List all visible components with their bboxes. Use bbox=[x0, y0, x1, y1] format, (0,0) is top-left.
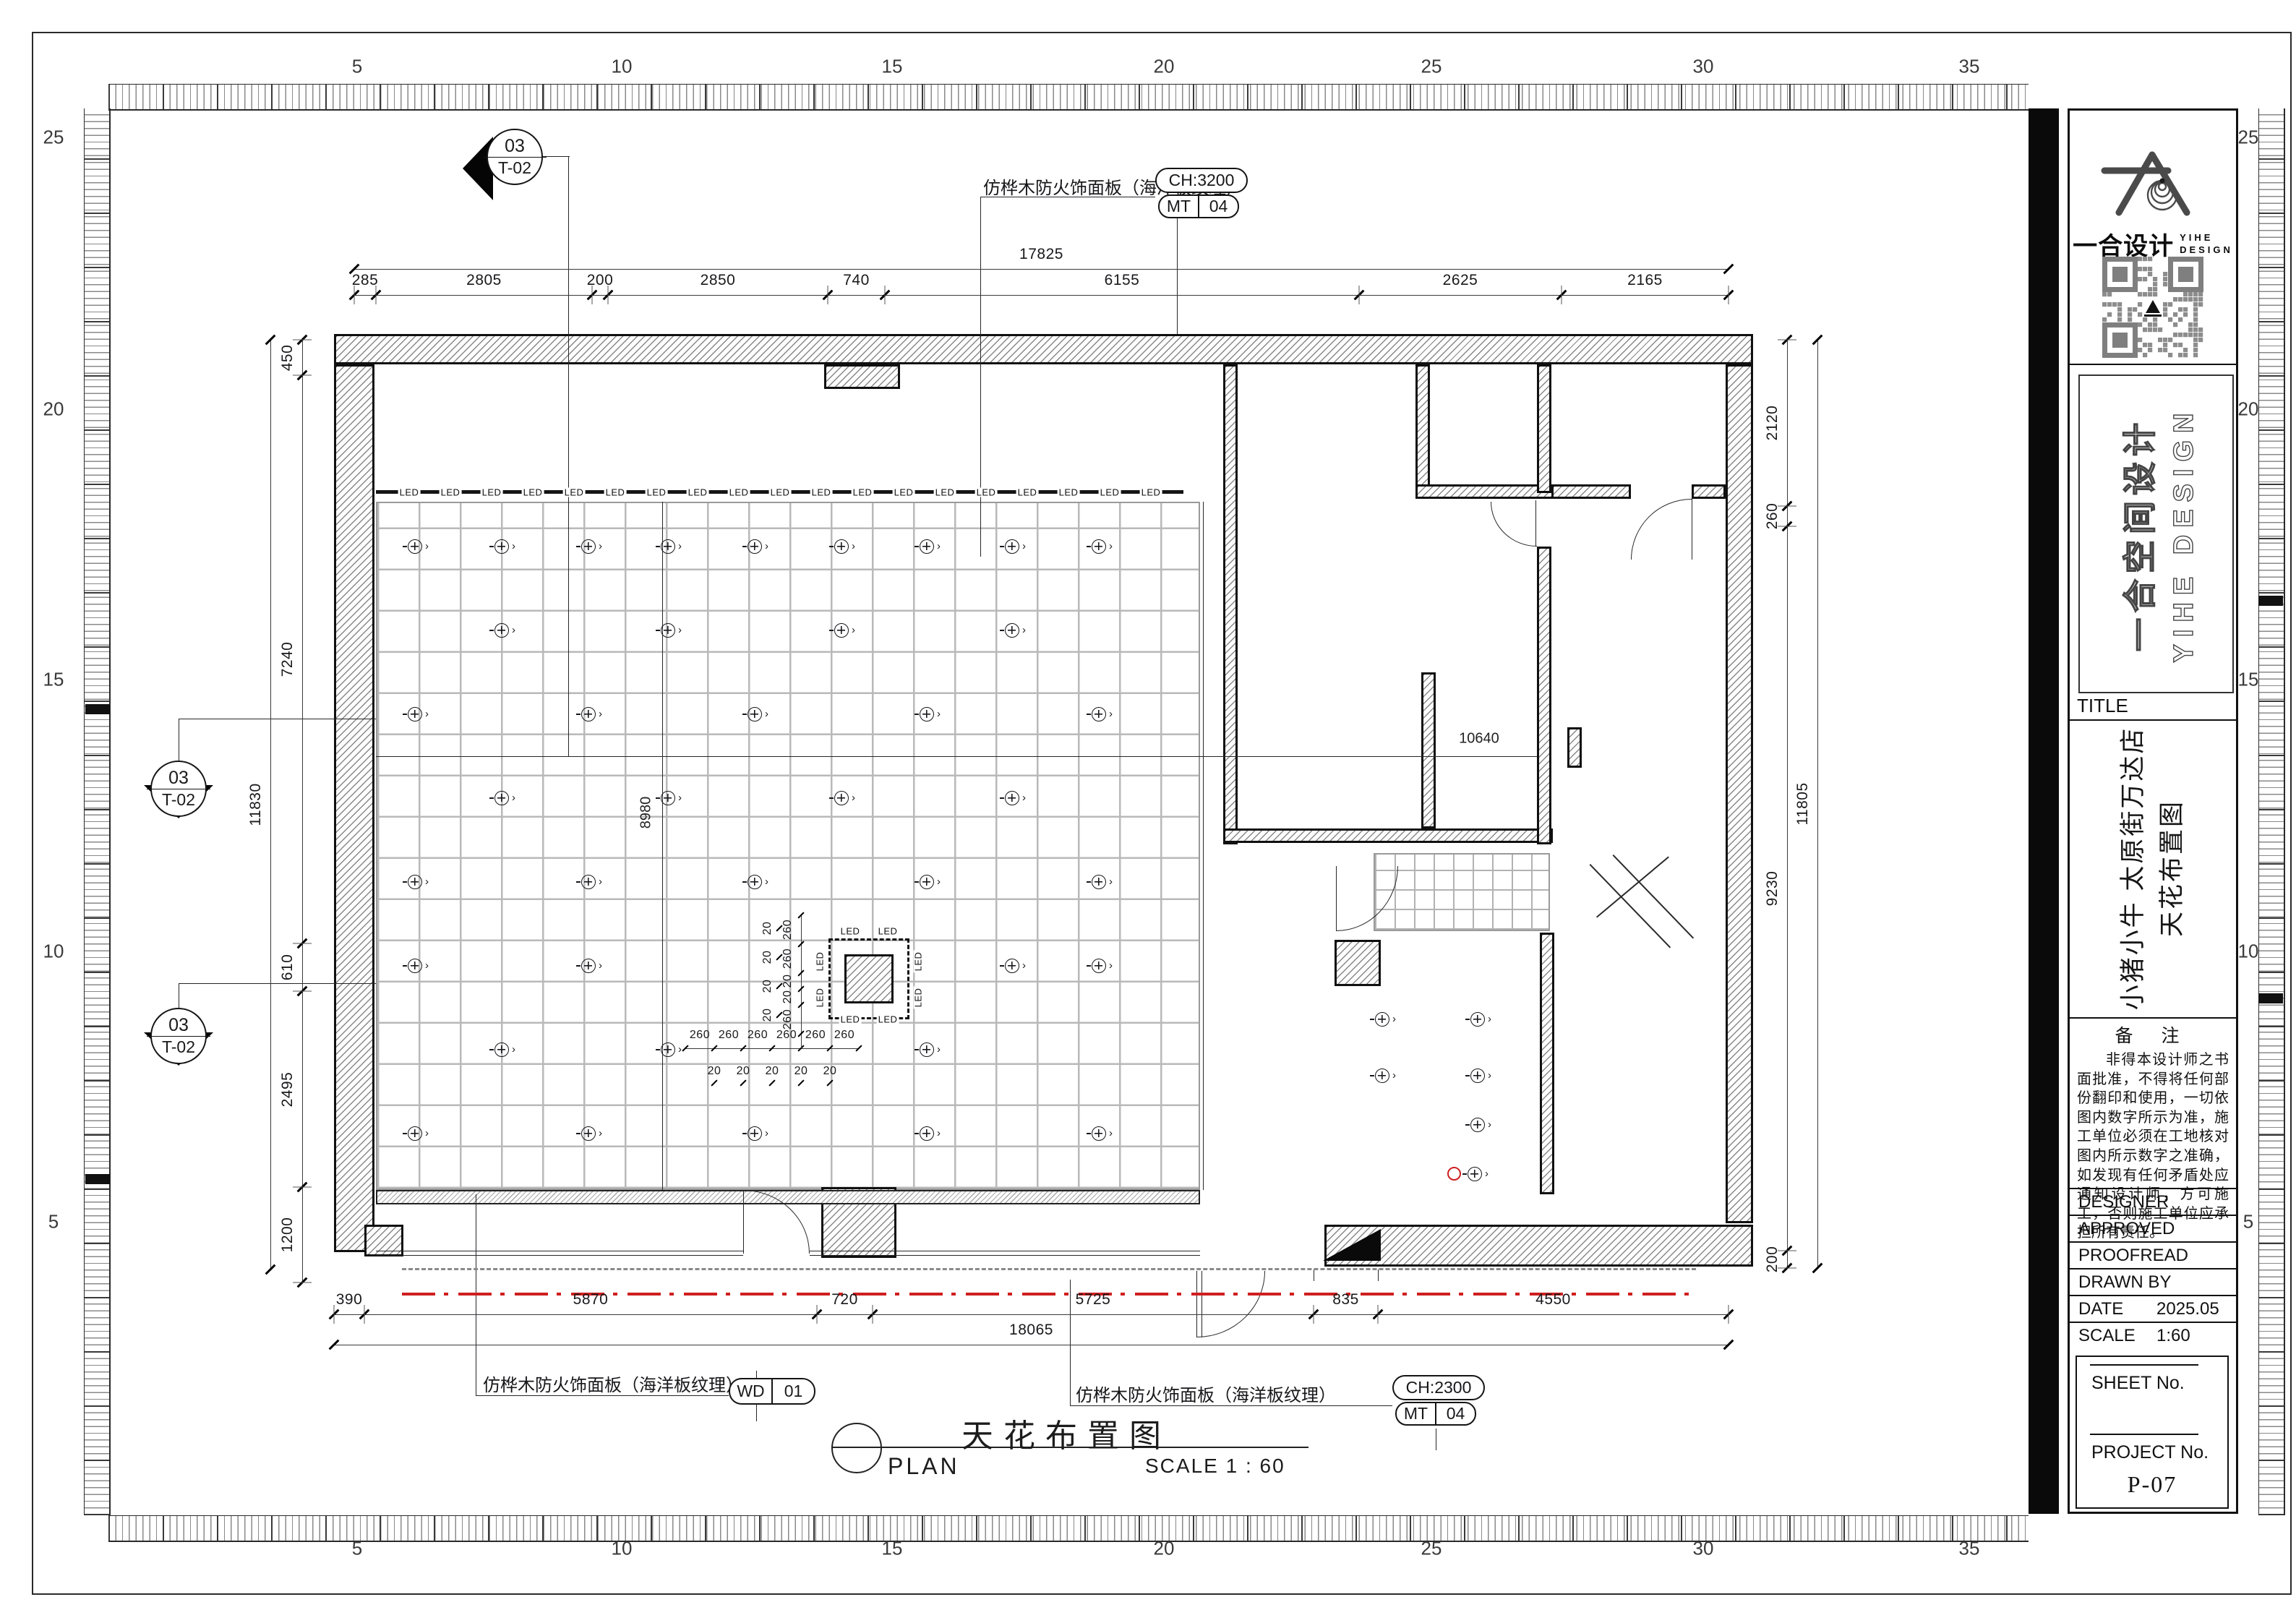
downlight-icon bbox=[661, 791, 675, 805]
led-label: LED bbox=[522, 488, 544, 497]
dimension-value: 20 bbox=[761, 951, 774, 964]
titleblock-rule bbox=[2070, 364, 2236, 365]
dimension-value: 20 bbox=[737, 1065, 750, 1078]
ruler-number: 30 bbox=[1693, 1538, 1714, 1560]
titleblock-row-label: DESIGNER bbox=[2078, 1192, 2169, 1212]
downlight-icon bbox=[494, 1042, 509, 1057]
project-no-label: PROJECT No. bbox=[2091, 1442, 2209, 1463]
titleblock-row-label: APPROVED bbox=[2078, 1219, 2175, 1239]
downlight-icon bbox=[748, 707, 762, 721]
dimension-value: 260 bbox=[690, 1029, 710, 1042]
led-label: LED bbox=[852, 488, 874, 497]
titleblock-row-label: SCALE bbox=[2078, 1326, 2136, 1346]
downlight-icon bbox=[834, 623, 849, 638]
brand-en-line2: DESIGN bbox=[2180, 244, 2233, 256]
inner-dim-v: 8980 bbox=[638, 797, 655, 829]
led-label: LED bbox=[877, 927, 899, 936]
dim-extension bbox=[293, 1282, 312, 1283]
dimension-line bbox=[354, 295, 1729, 296]
led-label: LED bbox=[769, 488, 792, 497]
title-label: TITLE bbox=[2077, 695, 2128, 717]
downlight-icon bbox=[1092, 539, 1106, 554]
material-tag: MT 04 bbox=[1158, 194, 1239, 218]
dimension-value: 20 bbox=[781, 975, 794, 988]
red-circle-mark bbox=[1447, 1167, 1461, 1181]
led-label: LED bbox=[815, 951, 825, 973]
led-label: LED bbox=[914, 951, 923, 973]
section-sheet-ref: T-02 bbox=[162, 789, 195, 810]
led-label: LED bbox=[1058, 488, 1080, 497]
dimension-value: 285 bbox=[352, 272, 379, 289]
led-label: LED bbox=[646, 488, 668, 497]
dim-extension bbox=[817, 1305, 818, 1324]
dimension-value: 260 bbox=[781, 920, 794, 940]
sheet-no-label: SHEET No. bbox=[2091, 1373, 2185, 1394]
dimension-value: 450 bbox=[279, 344, 296, 371]
dimension-value: 20 bbox=[708, 1065, 721, 1078]
wall-segment bbox=[1421, 672, 1436, 828]
wall-segment bbox=[334, 334, 1753, 364]
wall-segment bbox=[1335, 940, 1381, 986]
led-label: LED bbox=[1140, 488, 1162, 497]
storefront-dashed-line bbox=[402, 1268, 1696, 1270]
section-sheet-ref: T-02 bbox=[162, 1037, 195, 1058]
section-marker-bubble: 03 T-02 bbox=[150, 1008, 207, 1064]
led-label: LED bbox=[563, 488, 586, 497]
plan-title: 天花布置图 bbox=[961, 1410, 1171, 1456]
dimension-line bbox=[1817, 340, 1818, 1268]
led-label: LED bbox=[398, 488, 421, 497]
section-number: 03 bbox=[483, 135, 547, 158]
plan-line bbox=[1692, 499, 1692, 560]
section-marker-bubble: 03 T-02 bbox=[150, 761, 207, 817]
ruler-number: 25 bbox=[2238, 127, 2259, 149]
downlight-icon bbox=[408, 539, 422, 554]
drawing-name: 天花布置图 bbox=[2153, 800, 2192, 937]
dimension-value: 2805 bbox=[466, 272, 502, 289]
section-marker-top: 03 T-02 bbox=[479, 129, 551, 208]
dimension-value: 20 bbox=[761, 980, 774, 993]
fold-mark bbox=[2258, 993, 2283, 1003]
downlight-icon bbox=[581, 1126, 596, 1141]
material-code: MT bbox=[1397, 1403, 1436, 1424]
dimension-value: 5870 bbox=[573, 1291, 609, 1309]
material-number: 04 bbox=[1199, 196, 1238, 217]
ruler-band-bottom bbox=[108, 1515, 2029, 1542]
section-marker-bubble: 03 T-02 bbox=[487, 129, 543, 185]
annotation-bottom-left-text: 仿桦木防火饰面板（海洋板纹理） bbox=[483, 1371, 743, 1396]
section-number: 03 bbox=[147, 1014, 211, 1037]
titleblock-divider-bar bbox=[2029, 108, 2059, 1514]
fold-mark bbox=[2258, 596, 2283, 606]
led-label: LED bbox=[1099, 488, 1121, 497]
dim-extension bbox=[1562, 286, 1562, 304]
titleblock-row-label: PROOFREAD bbox=[2078, 1246, 2188, 1266]
plan-line bbox=[1436, 1429, 1436, 1450]
downlight-icon bbox=[494, 623, 509, 638]
ruler-number: 15 bbox=[882, 56, 903, 78]
dimension-value: 2120 bbox=[1764, 406, 1781, 441]
downlight-icon bbox=[581, 959, 596, 973]
plan-line bbox=[810, 1255, 1200, 1256]
dimension-line bbox=[354, 269, 1729, 270]
titleblock-row-label: DATE bbox=[2078, 1299, 2123, 1319]
annotation-bottom-right-tag: CH:2300 MT 04 bbox=[1392, 1375, 1485, 1426]
plan-title-en: PLAN bbox=[888, 1453, 960, 1480]
dim-extension bbox=[1778, 340, 1796, 341]
ruler-number: 25 bbox=[43, 127, 64, 149]
ruler-number: 30 bbox=[1693, 56, 1714, 78]
ruler-band-top bbox=[108, 84, 2029, 111]
downlight-icon bbox=[581, 875, 596, 889]
led-label: LED bbox=[604, 488, 627, 497]
dimension-value: 610 bbox=[279, 954, 296, 981]
downlight-icon bbox=[1005, 791, 1019, 805]
dimension-value: 20 bbox=[823, 1065, 837, 1078]
wall-segment bbox=[1223, 828, 1553, 843]
dimension-value: 390 bbox=[336, 1291, 363, 1309]
dim-extension bbox=[293, 943, 312, 944]
downlight-icon bbox=[1092, 1126, 1106, 1141]
downlight-icon bbox=[834, 791, 849, 805]
dimension-value: 20 bbox=[766, 1065, 779, 1078]
ruler-number: 25 bbox=[1421, 1538, 1442, 1560]
dimension-line bbox=[270, 340, 271, 1269]
qr-code bbox=[2102, 257, 2203, 358]
dimension-value: 2495 bbox=[279, 1071, 296, 1107]
plan-line bbox=[179, 983, 179, 1008]
led-label: LED bbox=[975, 488, 998, 497]
dim-extension bbox=[293, 375, 312, 376]
dimension-value: 7240 bbox=[279, 642, 296, 677]
titleblock-rule bbox=[2070, 1295, 2236, 1296]
dimension-value: 260 bbox=[1764, 503, 1781, 530]
downlight-icon bbox=[661, 539, 675, 554]
ceiling-height-tag: CH:2300 bbox=[1392, 1375, 1485, 1400]
annotation-bottom-right-text: 仿桦木防火饰面板（海洋板纹理） bbox=[1076, 1381, 1336, 1406]
section-number: 03 bbox=[147, 767, 211, 789]
wall-segment bbox=[364, 1225, 403, 1256]
brand-vertical-box: 一合空间设计 YIHE DESIGN bbox=[2078, 374, 2234, 693]
yihe-logo-icon bbox=[2099, 137, 2207, 222]
section-marker-left-1: 03 T-02 bbox=[142, 761, 215, 840]
dim-extension bbox=[364, 1305, 365, 1324]
ruler-number: 35 bbox=[1959, 1538, 1980, 1560]
plan-line bbox=[1177, 214, 1178, 334]
downlight-icon bbox=[1092, 959, 1106, 973]
project-number: P-07 bbox=[2077, 1471, 2227, 1498]
dimension-value: 835 bbox=[1332, 1291, 1359, 1309]
ceiling-grid-small bbox=[1374, 853, 1550, 931]
dim-extension bbox=[293, 991, 312, 992]
plan-line bbox=[179, 983, 376, 984]
downlight-icon bbox=[920, 1042, 934, 1057]
ruler-number: 20 bbox=[1154, 1538, 1175, 1560]
plan-line bbox=[810, 1251, 1200, 1251]
downlight-icon bbox=[1468, 1167, 1482, 1181]
dimension-value: 20 bbox=[794, 1065, 808, 1078]
fold-mark bbox=[85, 1174, 110, 1184]
dim-extension bbox=[1359, 286, 1360, 304]
downlight-icon bbox=[1005, 623, 1019, 638]
wall-segment bbox=[1537, 547, 1551, 844]
led-label: LED bbox=[815, 987, 825, 1009]
plan-line bbox=[1314, 1269, 1314, 1281]
downlight-icon bbox=[1470, 1118, 1485, 1132]
plan-line bbox=[179, 719, 376, 719]
dimension-value: 260 bbox=[834, 1029, 854, 1042]
titleblock-row-label: DRAWN BY bbox=[2078, 1272, 2171, 1293]
wall-segment bbox=[1726, 364, 1753, 1223]
downlight-icon bbox=[408, 707, 422, 721]
downlight-icon bbox=[748, 1126, 762, 1141]
led-label: LED bbox=[687, 488, 709, 497]
dimension-value: 720 bbox=[831, 1291, 858, 1309]
downlight-icon bbox=[408, 959, 422, 973]
downlight-icon bbox=[834, 539, 849, 554]
dimension-line bbox=[334, 1345, 1729, 1345]
titleblock-row-value: 2025.05 bbox=[2156, 1299, 2219, 1319]
material-number: 01 bbox=[773, 1379, 814, 1403]
wall-segment bbox=[1415, 364, 1430, 493]
dim-extension bbox=[1314, 1305, 1314, 1324]
led-label: LED bbox=[1016, 488, 1039, 497]
titleblock-rule bbox=[2090, 1364, 2198, 1366]
sheet-number-box: SHEET No. PROJECT No. P-07 bbox=[2076, 1356, 2229, 1509]
downlight-icon bbox=[748, 875, 762, 889]
annotation-top-tag: CH:3200 MT 04 bbox=[1155, 168, 1248, 218]
brand-name-en: YIHE DESIGN bbox=[2180, 232, 2233, 256]
plan-line bbox=[376, 1255, 743, 1256]
wall-segment bbox=[1692, 484, 1726, 499]
downlight-icon bbox=[920, 1126, 934, 1141]
led-label: LED bbox=[934, 488, 956, 497]
ruler-number: 15 bbox=[2238, 669, 2259, 691]
dimension-value: 4550 bbox=[1535, 1291, 1571, 1309]
wall-segment bbox=[1324, 1225, 1753, 1267]
dim-extension bbox=[1378, 1305, 1379, 1324]
dim-extension bbox=[1729, 286, 1729, 304]
titleblock-row-value: 1:60 bbox=[2156, 1326, 2190, 1346]
ruler-number: 20 bbox=[43, 398, 64, 421]
dimension-line bbox=[1787, 340, 1788, 1268]
ruler-number: 5 bbox=[2243, 1211, 2253, 1233]
dimension-value: 260 bbox=[805, 1029, 826, 1042]
downlight-icon bbox=[494, 791, 509, 805]
dimension-value: 5725 bbox=[1076, 1291, 1111, 1309]
titleblock-rule bbox=[2090, 1434, 2198, 1435]
led-label: LED bbox=[481, 488, 503, 497]
dimension-line bbox=[302, 340, 303, 1282]
dimension-value: 260 bbox=[781, 948, 794, 969]
dimension-line bbox=[801, 915, 802, 1048]
dimension-value: 9230 bbox=[1764, 871, 1781, 907]
wood-panel-band bbox=[376, 1190, 1200, 1204]
downlight-icon bbox=[1092, 875, 1106, 889]
plan-scale: SCALE 1 : 60 bbox=[1145, 1455, 1285, 1478]
plan-line bbox=[179, 719, 179, 761]
led-label: LED bbox=[914, 987, 923, 1009]
section-marker-left-2: 03 T-02 bbox=[142, 1008, 215, 1087]
dimension-value: 1200 bbox=[279, 1217, 296, 1253]
plan-line bbox=[376, 1251, 743, 1251]
dim-extension bbox=[293, 340, 312, 341]
wall-segment bbox=[1540, 933, 1554, 1194]
section-sheet-ref: T-02 bbox=[498, 158, 531, 179]
column bbox=[844, 954, 894, 1003]
dim-extension bbox=[873, 1305, 873, 1324]
downlight-icon bbox=[1005, 959, 1019, 973]
notes-title: 备 注 bbox=[2070, 1022, 2236, 1048]
dimension-value: 2850 bbox=[701, 272, 736, 289]
downlight-icon bbox=[1375, 1012, 1389, 1027]
plan-line bbox=[662, 502, 663, 1190]
material-tag: MT 04 bbox=[1395, 1402, 1476, 1426]
wall-segment bbox=[1567, 727, 1582, 768]
wall-segment bbox=[1551, 484, 1631, 499]
led-label: LED bbox=[839, 1015, 862, 1024]
dimension-value: 20 bbox=[761, 922, 774, 935]
dimension-line bbox=[334, 1314, 1729, 1315]
ruler-number: 25 bbox=[1421, 56, 1442, 78]
downlight-icon bbox=[1092, 707, 1106, 721]
titleblock-rule bbox=[2070, 1268, 2236, 1269]
wall-segment bbox=[1223, 364, 1238, 844]
ruler-number: 35 bbox=[1959, 56, 1980, 78]
dim-extension bbox=[293, 1187, 312, 1188]
titleblock-rule bbox=[2070, 1241, 2236, 1243]
downlight-icon bbox=[581, 539, 596, 554]
led-label: LED bbox=[728, 488, 750, 497]
brand-vertical-en: YIHE DESIGN bbox=[2168, 406, 2199, 662]
entrance-wedge bbox=[1323, 1229, 1381, 1261]
dimension-value: 2165 bbox=[1627, 272, 1663, 289]
downlight-icon bbox=[1375, 1069, 1389, 1083]
led-label: LED bbox=[893, 488, 915, 497]
downlight-icon bbox=[1470, 1012, 1485, 1027]
dim-extension bbox=[885, 286, 886, 304]
ruler-number: 15 bbox=[882, 1538, 903, 1560]
titleblock-rule bbox=[2070, 1215, 2236, 1216]
downlight-icon bbox=[1470, 1069, 1485, 1083]
ruler-number: 5 bbox=[48, 1211, 59, 1233]
wall-segment bbox=[1537, 364, 1551, 493]
downlight-icon bbox=[408, 1126, 422, 1141]
dimension-value: 260 bbox=[719, 1029, 739, 1042]
ruler-number: 20 bbox=[2238, 398, 2259, 421]
downlight-icon bbox=[920, 875, 934, 889]
ruler-number: 10 bbox=[43, 941, 64, 963]
ruler-number: 10 bbox=[612, 1538, 633, 1560]
plan-line bbox=[1070, 1280, 1071, 1405]
material-number: 04 bbox=[1436, 1403, 1475, 1424]
brand-en-line1: YIHE bbox=[2180, 232, 2233, 244]
dimension-value: 2625 bbox=[1443, 272, 1478, 289]
ruler-band-left bbox=[84, 108, 111, 1515]
titleblock-rule bbox=[2070, 1322, 2236, 1323]
dimension-value: 260 bbox=[748, 1029, 768, 1042]
ceiling-height-tag: CH:3200 bbox=[1155, 168, 1248, 193]
brand-vertical-cn: 一合空间设计 bbox=[2113, 417, 2161, 651]
ruler-band-right bbox=[2258, 108, 2285, 1515]
ruler-number: 20 bbox=[1154, 56, 1175, 78]
ruler-number: 10 bbox=[612, 56, 633, 78]
ruler-number: 10 bbox=[2238, 941, 2259, 963]
led-label: LED bbox=[839, 927, 862, 936]
plan-title-bubble bbox=[831, 1423, 882, 1473]
ruler-number: 15 bbox=[43, 669, 64, 691]
annotation-bottom-left-tag: WD 01 bbox=[729, 1378, 815, 1405]
notes-box: 备 注 非得本设计师之书面批准，不得将任何部份翻印和使用，一切依图内数字所示为准… bbox=[2070, 1017, 2236, 1188]
plan-line bbox=[1378, 1269, 1379, 1281]
led-label: LED bbox=[440, 488, 462, 497]
project-title-box: 小猪小牛 太原街万达店 天花布置图 bbox=[2070, 719, 2236, 1017]
dim-extension bbox=[334, 1305, 335, 1324]
downlight-icon bbox=[581, 707, 596, 721]
dimension-value: 740 bbox=[843, 272, 870, 289]
dimension-value: 6155 bbox=[1105, 272, 1140, 289]
drawing-sheet: 5101520253035510152025303525201510525201… bbox=[0, 0, 2296, 1623]
fold-mark bbox=[85, 704, 110, 714]
wall-segment bbox=[824, 364, 900, 389]
downlight-icon bbox=[920, 539, 934, 554]
plan-line bbox=[568, 156, 569, 756]
ruler-number: 5 bbox=[352, 1538, 362, 1560]
dimension-value: 200 bbox=[587, 272, 614, 289]
dimension-value: 20 bbox=[781, 990, 794, 1004]
titleblock-rule bbox=[2070, 1188, 2236, 1189]
ruler-number: 5 bbox=[352, 56, 362, 78]
led-label: LED bbox=[810, 488, 833, 497]
inner-dim-h: 10640 bbox=[1459, 731, 1499, 748]
dimension-value: 11830 bbox=[247, 783, 265, 826]
dim-extension bbox=[828, 286, 828, 304]
plan-line bbox=[1203, 502, 1204, 1190]
wall-segment bbox=[334, 364, 374, 1252]
downlight-icon bbox=[1005, 539, 1019, 554]
titleblock: 一合设计 YIHE DESIGN 一合空间设计 YIHE DESIGN TITL… bbox=[2068, 108, 2238, 1514]
downlight-icon bbox=[408, 875, 422, 889]
downlight-icon bbox=[748, 539, 762, 554]
dimension-value: 260 bbox=[781, 1009, 794, 1029]
dimension-value: 20 bbox=[761, 1009, 774, 1022]
dimension-value: 17825 bbox=[1019, 246, 1063, 263]
plan-line bbox=[980, 197, 981, 557]
downlight-icon bbox=[661, 623, 675, 638]
downlight-icon bbox=[920, 707, 934, 721]
material-code: MT bbox=[1160, 196, 1199, 217]
dim-extension bbox=[1729, 1305, 1729, 1324]
project-name: 小猪小牛 太原街万达店 bbox=[2114, 727, 2153, 1011]
dimension-value: 200 bbox=[1764, 1246, 1781, 1273]
led-label: LED bbox=[877, 1015, 899, 1024]
dimension-value: 260 bbox=[776, 1029, 797, 1042]
downlight-icon bbox=[661, 1042, 675, 1057]
ceiling-grid-main bbox=[376, 502, 1200, 1190]
material-code: WD bbox=[730, 1379, 773, 1403]
downlight-icon bbox=[494, 539, 509, 554]
dimension-value: 11805 bbox=[1794, 782, 1812, 825]
plan-line bbox=[376, 756, 1537, 757]
dimension-value: 18065 bbox=[1009, 1322, 1053, 1339]
